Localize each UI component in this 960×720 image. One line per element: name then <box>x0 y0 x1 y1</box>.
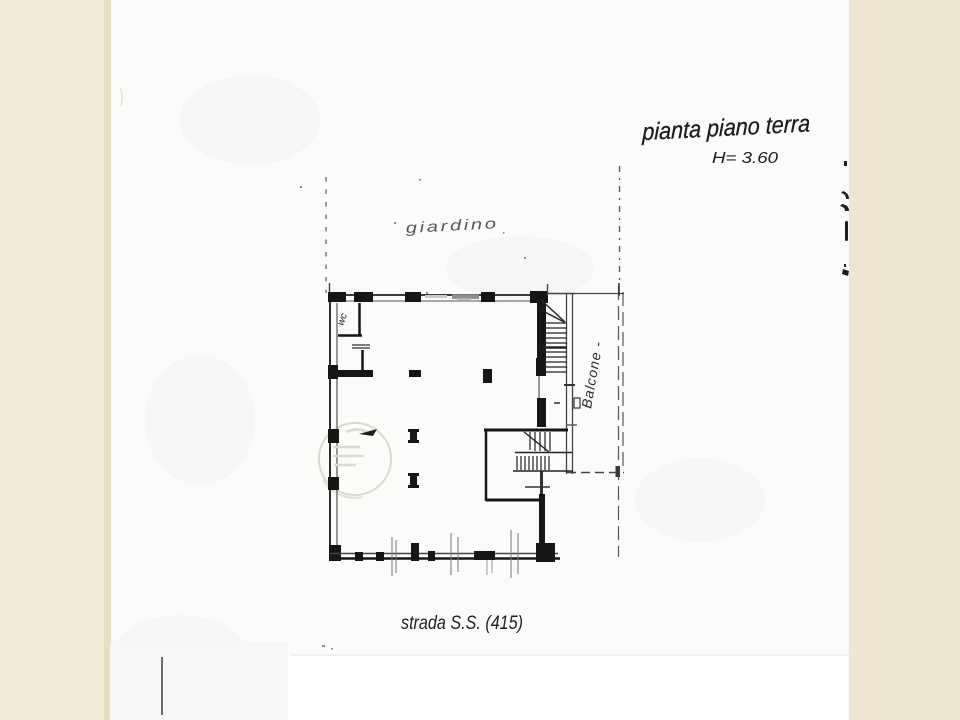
svg-text:H= 3.60: H= 3.60 <box>712 150 778 167</box>
svg-text:strada S.S. (415): strada S.S. (415) <box>401 613 523 634</box>
